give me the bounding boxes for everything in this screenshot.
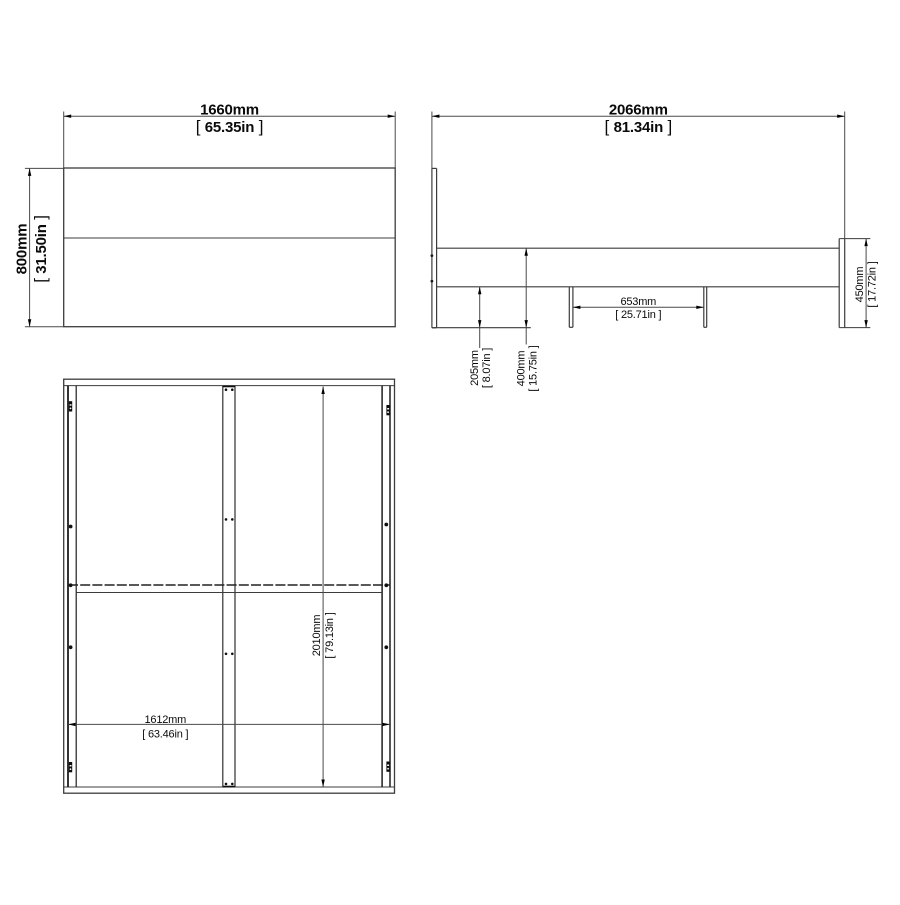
svg-text:[ 79.13in ]: [ 79.13in ] xyxy=(324,612,336,658)
svg-text:1660mm: 1660mm xyxy=(200,102,259,119)
svg-text:800mm: 800mm xyxy=(14,224,31,275)
svg-text:653mm: 653mm xyxy=(620,296,656,308)
svg-text:2010mm: 2010mm xyxy=(311,615,323,657)
svg-text:[ 15.75in ]: [ 15.75in ] xyxy=(528,345,540,391)
svg-text:400mm: 400mm xyxy=(515,351,527,387)
svg-text:2066mm: 2066mm xyxy=(609,102,668,119)
svg-text:[ 17.72in ]: [ 17.72in ] xyxy=(866,261,878,307)
svg-text:[ 25.71in ]: [ 25.71in ] xyxy=(615,309,661,321)
svg-text:[ 63.46in ]: [ 63.46in ] xyxy=(142,728,188,740)
svg-text:450mm: 450mm xyxy=(854,267,866,303)
svg-text:1612mm: 1612mm xyxy=(144,714,186,726)
svg-text:205mm: 205mm xyxy=(469,350,481,386)
svg-text:[ 8.07in ]: [ 8.07in ] xyxy=(481,348,493,388)
svg-text:[ 31.50in ]: [ 31.50in ] xyxy=(31,215,50,283)
svg-text:[ 81.34in ]: [ 81.34in ] xyxy=(605,117,673,136)
svg-text:[ 65.35in ]: [ 65.35in ] xyxy=(196,117,264,136)
